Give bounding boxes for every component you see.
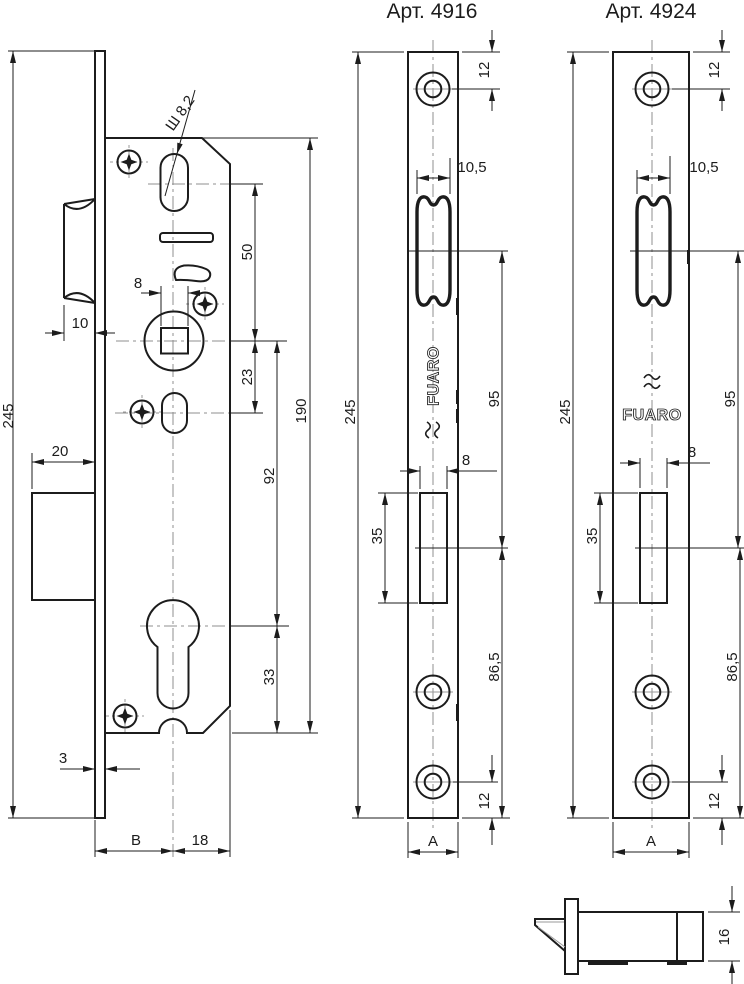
dim-spindle-to-cylinder: 92	[261, 341, 278, 626]
curved-slot	[175, 265, 211, 281]
dim-bolt-width-4924: 8	[620, 444, 710, 488]
dim-label-12-bot-4916: 12	[476, 793, 493, 810]
dim-side-height: 16	[708, 886, 740, 984]
shaft-note-label: Ш 8,2	[162, 93, 198, 135]
dim-label-8-4916: 8	[462, 452, 470, 469]
faceplate-side	[565, 899, 578, 974]
dim-label-23: 23	[239, 369, 256, 386]
dim-plate-width-4924: A	[613, 822, 689, 858]
horizontal-slot	[160, 233, 213, 242]
dim-label-12-bot-4924: 12	[706, 793, 723, 810]
dim-label-A-4924: A	[646, 833, 656, 850]
dim-label-12-top-4924: 12	[706, 62, 723, 79]
dim-label-35-4924: 35	[584, 528, 601, 545]
dim-overall-height-4916: 245	[342, 52, 404, 818]
dim-top-hole-offset-4924: 12	[672, 30, 730, 111]
strike-plate-4916-view: FUARO 12 10,5 245 95	[342, 30, 510, 858]
dim-label-8: 8	[134, 275, 142, 292]
strike-plate-4924	[613, 52, 689, 818]
dim-latch-width-4916: 10,5	[417, 158, 487, 194]
lock-body-view: Ш 8,2 245 10 20 8	[0, 51, 318, 858]
title-strike-4916: Арт. 4916	[387, 0, 478, 23]
mounting-tab-left	[588, 961, 628, 965]
case-side	[578, 912, 703, 961]
leader-shaft-note: Ш 8,2	[162, 90, 198, 196]
lock-case	[105, 138, 230, 733]
dim-faceplate-thickness: 3	[59, 750, 140, 769]
dim-label-3: 3	[59, 750, 67, 767]
dim-label-33: 33	[261, 669, 278, 686]
brand-logo-4916: FUARO	[426, 346, 443, 438]
brand-name-4924: FUARO	[622, 407, 681, 424]
lock-side-view: 16	[535, 886, 740, 984]
dim-bottom-hole-offset-4916: 12	[476, 755, 493, 845]
dim-overall-height: 245	[0, 51, 94, 818]
dim-label-245-4924: 245	[557, 399, 574, 424]
dim-label-35-4916: 35	[369, 528, 386, 545]
dim-bolt-width-4916: 8	[400, 452, 497, 489]
dim-cylinder-to-bottom: 33	[261, 626, 278, 733]
dim-overall-height-4924: 245	[557, 52, 609, 818]
dim-spindle-square: 8	[134, 275, 208, 326]
latch-bevel-side	[535, 919, 565, 951]
dim-deadbolt-protrusion: 20	[32, 443, 95, 489]
screw-bottom	[106, 699, 144, 733]
dim-label-865-4924: 86,5	[724, 652, 741, 681]
dim-label-865-4916: 86,5	[486, 652, 503, 681]
dim-label-95-4924: 95	[722, 391, 739, 408]
dim-bolt-to-bottom-4916: 86,5	[462, 548, 510, 818]
dim-label-50: 50	[239, 244, 256, 261]
dim-top-hole-offset-4916: 12	[452, 30, 500, 111]
roller-latch-bolt	[64, 199, 95, 303]
dim-label-10: 10	[72, 315, 89, 332]
screw-middle	[186, 287, 224, 321]
dim-case-height: 190	[202, 138, 318, 733]
strike-plate-4924-view: FUARO 12 10,5 245 95	[557, 30, 744, 858]
dim-bottom-hole-offset-4924: 12	[706, 755, 723, 845]
dim-label-105-4924: 10,5	[689, 159, 718, 176]
dim-label-B: B	[131, 832, 141, 849]
dim-label-20: 20	[52, 443, 69, 460]
screw-lower	[123, 395, 161, 429]
deadbolt	[32, 493, 95, 600]
dim-label-18: 18	[192, 832, 209, 849]
dim-bolt-height-4924: 35	[584, 493, 638, 603]
dim-label-245: 245	[0, 403, 17, 428]
dim-latch-to-bolt-4924: 95	[722, 251, 739, 548]
technical-drawing-page: Арт. 4916 Арт. 4924	[0, 0, 744, 984]
dim-label-8-4924: 8	[688, 444, 696, 461]
dim-label-245-4916: 245	[342, 399, 359, 424]
dim-label-92: 92	[261, 468, 278, 485]
dim-latch-width-4924: 10,5	[637, 156, 719, 194]
dim-label-95-4916: 95	[486, 391, 503, 408]
brand-name-4916: FUARO	[426, 346, 443, 405]
dim-label-16: 16	[716, 929, 733, 946]
mounting-tab-right	[667, 961, 687, 965]
dim-label-12-top-4916: 12	[476, 62, 493, 79]
dim-bolt-height-4916: 35	[369, 493, 418, 603]
dim-bolt-to-bottom-4924: 86,5	[693, 548, 744, 818]
lock-technical-drawing: Арт. 4916 Арт. 4924	[0, 0, 744, 984]
dim-label-190: 190	[293, 398, 310, 423]
dim-label-A-4916: A	[428, 833, 438, 850]
title-strike-4924: Арт. 4924	[606, 0, 697, 23]
latch-inner-line2	[538, 927, 565, 947]
dim-latch-to-spindle: 50	[239, 184, 256, 341]
dim-spindle-to-handle-hole: 23	[239, 341, 256, 413]
dim-latch-to-bolt-4916: 95	[486, 251, 503, 548]
screw-top	[110, 145, 148, 179]
faceplate	[95, 51, 105, 818]
dim-label-105-4916: 10,5	[457, 159, 486, 176]
